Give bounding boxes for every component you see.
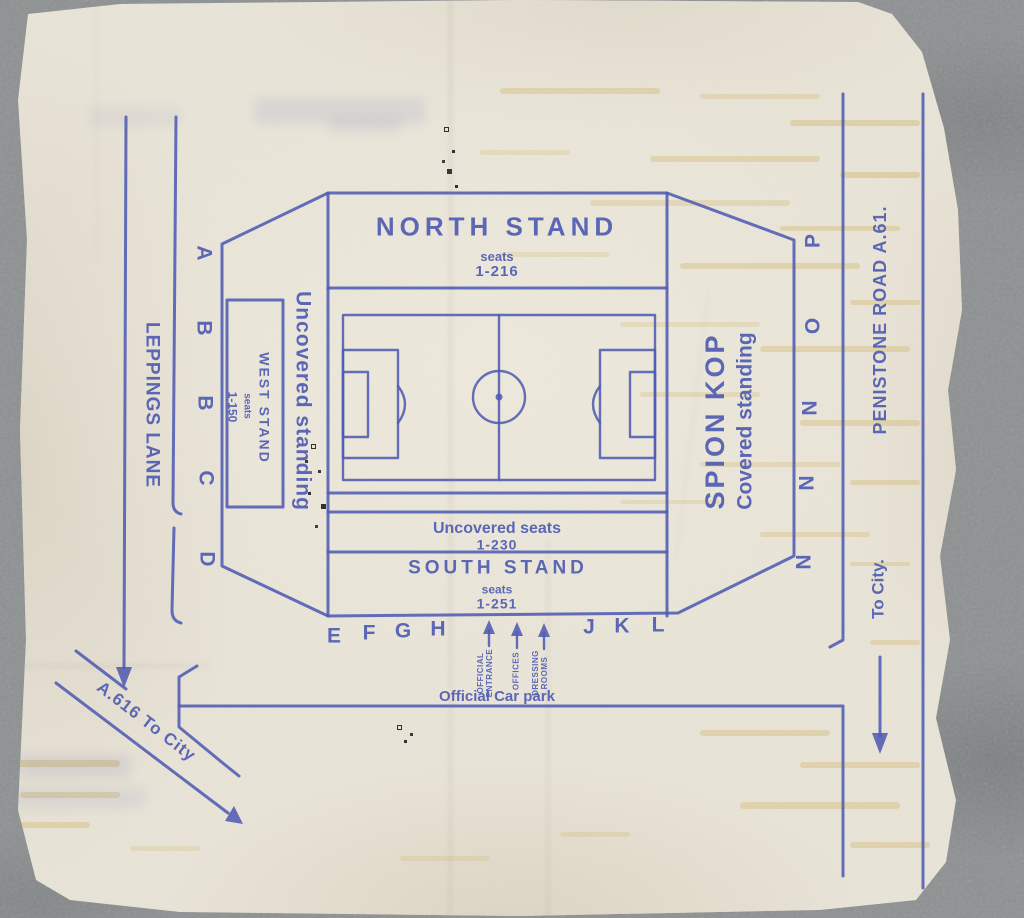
gate-letter-west: A (192, 245, 215, 260)
uncovered-seats-title: Uncovered seats (433, 520, 561, 538)
spion-kop-title: SPION KOP (701, 332, 731, 509)
uncovered-seats-range: 1-230 (477, 537, 518, 552)
left-goal-area (343, 372, 368, 437)
scanned-ticket-photo: NORTH STAND seats 1-216 WEST STAND seats… (0, 0, 1024, 918)
official-entrance-arrowhead (483, 620, 495, 634)
west-stand-seats-word: seats (242, 393, 253, 419)
gate-letter-east: N (795, 475, 818, 490)
west-stand-title: WEST STAND (256, 352, 271, 464)
gate-letter-west: D (195, 551, 218, 566)
west-terrace-label: Uncovered standing (291, 291, 314, 511)
gate-letter-south: H (430, 617, 445, 640)
offices-arrowhead (511, 622, 523, 636)
gate-letter-south: L (652, 613, 665, 636)
gate-letter-south: G (395, 619, 411, 642)
to-city-arrowhead (872, 733, 888, 754)
gate-letter-south: J (583, 615, 595, 638)
gate-letter-east: O (801, 318, 824, 334)
leppings-lane-label: LEPPINGS LANE (141, 322, 162, 488)
offices-label: OFFICES (513, 652, 522, 690)
leppings-lane-left-line (124, 117, 126, 668)
right-goal-area (630, 372, 655, 437)
penistone-road-left-line (830, 94, 843, 647)
right-penalty-area (600, 350, 655, 458)
car-park-road-line (179, 706, 843, 876)
gate-letter-east: N (798, 400, 821, 415)
penistone-road-label: PENISTONE ROAD A.61. (871, 205, 891, 434)
a616-arrowhead (225, 806, 243, 824)
gate-letter-west: C (194, 470, 217, 485)
gate-letter-south: F (363, 621, 376, 644)
leppings-lane-right-line (172, 117, 181, 623)
gate-letter-west: B (192, 320, 215, 335)
north-stand-seat-range: 1-216 (475, 264, 518, 281)
ticket-paper: NORTH STAND seats 1-216 WEST STAND seats… (0, 0, 1024, 918)
spion-kop-subtitle: Covered standing (733, 332, 756, 509)
left-penalty-area (343, 350, 398, 458)
to-city-label: To City. (870, 559, 889, 619)
south-stand-title: SOUTH STAND (408, 559, 588, 580)
gate-letter-south: K (614, 614, 629, 637)
south-stand-seat-range: 1-251 (477, 596, 518, 611)
official-entrance-label: OFFICIAL ENTRANCE (477, 649, 495, 697)
west-stand-seat-range: 1-150 (225, 392, 238, 423)
gate-letter-east: N (792, 554, 815, 569)
dressing-rooms-arrowhead (538, 623, 550, 637)
gate-letter-south: E (327, 624, 341, 647)
centre-spot (496, 394, 503, 401)
north-stand-title: NORTH STAND (376, 213, 618, 242)
gate-letter-east: P (801, 234, 824, 248)
gate-letter-west: B (193, 395, 216, 410)
dressing-rooms-label: DRESSING ROOMS (532, 650, 550, 696)
